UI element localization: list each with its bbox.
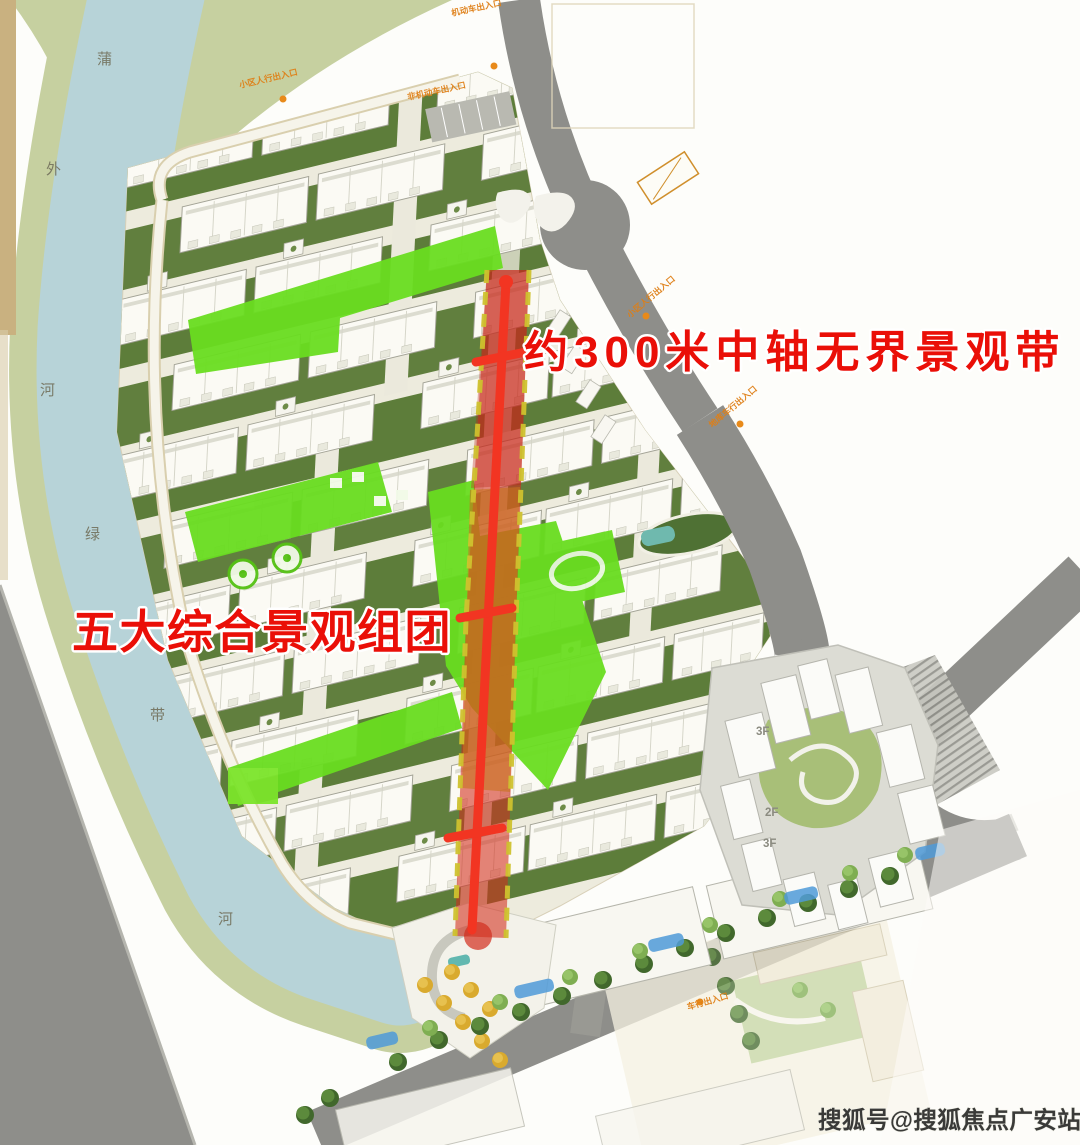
river-char: 河 xyxy=(40,382,55,399)
axis-annotation-label: 约300米中轴无界景观带 xyxy=(524,328,1065,377)
river-char: 带 xyxy=(150,707,165,724)
floor-label: 3F xyxy=(763,838,776,850)
clusters-annotation-label: 五大综合景观组团 xyxy=(72,606,452,658)
site-plan-page: 3F 2F 3F xyxy=(0,0,1080,1145)
floor-label: 3F xyxy=(756,726,769,738)
river-char: 河 xyxy=(218,911,233,928)
river-char: 蒲 xyxy=(97,51,112,68)
watermark-text: 搜狐号@搜狐焦点广安站 xyxy=(818,1106,1080,1133)
river-char: 外 xyxy=(46,161,61,178)
levee-strip xyxy=(0,0,16,335)
levee-strip-lower xyxy=(0,330,8,580)
site-plan-map: 3F 2F 3F xyxy=(0,0,1080,1145)
floor-label: 2F xyxy=(765,807,778,819)
river-char: 绿 xyxy=(85,526,100,543)
